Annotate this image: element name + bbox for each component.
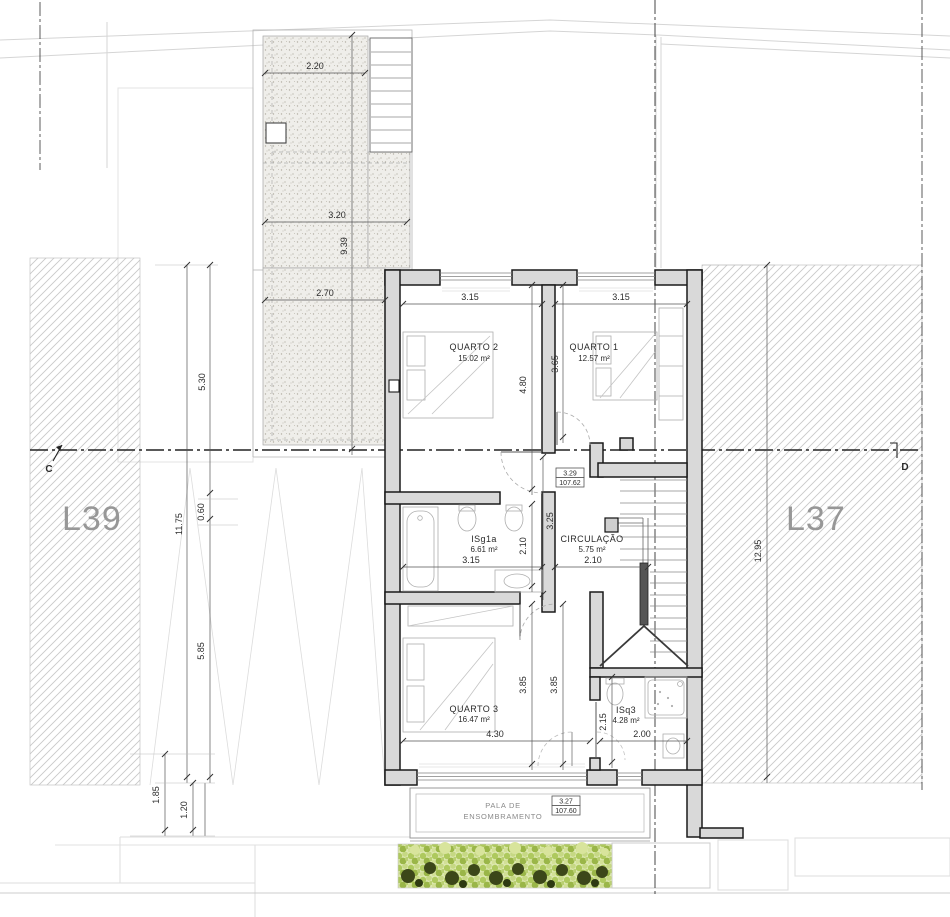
dim-q2-d: 4.80 bbox=[518, 376, 528, 394]
dim-isq3-d: 2.15 bbox=[598, 713, 608, 731]
room-isq3-name: ISq3 bbox=[616, 705, 636, 715]
dim-patio-top: 2.20 bbox=[306, 61, 324, 71]
dim-q2-w: 3.15 bbox=[461, 292, 479, 302]
svg-text:C: C bbox=[45, 464, 52, 475]
svg-text:D: D bbox=[901, 462, 908, 473]
dim-q1-w: 3.15 bbox=[612, 292, 630, 302]
room-isq3-area: 4.28 m² bbox=[612, 716, 639, 725]
dim-q1-d: 3.65 bbox=[550, 355, 560, 373]
lot-label-l37: L37 bbox=[786, 500, 846, 538]
dim-left-e: 1.20 bbox=[179, 801, 189, 819]
svg-text:107.62: 107.62 bbox=[559, 480, 581, 487]
floor-plan: L39 L37 bbox=[0, 0, 950, 917]
stair-column bbox=[605, 518, 618, 532]
room-circulacao-area: 5.75 m² bbox=[578, 545, 605, 554]
level-marker-pala: 3.27 107.60 bbox=[552, 796, 580, 815]
svg-text:107.60: 107.60 bbox=[555, 808, 577, 815]
dim-circ-d: 3.25 bbox=[545, 512, 555, 530]
dim-circ-w: 2.10 bbox=[584, 555, 602, 565]
room-quarto1-area: 12.57 m² bbox=[578, 354, 610, 363]
room-isg1a-area: 6.61 m² bbox=[470, 545, 497, 554]
dim-q3-w: 4.30 bbox=[486, 729, 504, 739]
dim-left-a: 5.30 bbox=[197, 373, 207, 391]
lot-label-l39: L39 bbox=[62, 500, 122, 538]
room-circulacao-name: CIRCULAÇÃO bbox=[560, 534, 623, 544]
hedge bbox=[398, 842, 612, 888]
room-quarto3-name: QUARTO 3 bbox=[450, 704, 499, 714]
svg-text:3.27: 3.27 bbox=[559, 799, 573, 806]
wall-vent bbox=[389, 380, 399, 392]
dim-patio-low: 2.70 bbox=[316, 288, 334, 298]
exterior-stair bbox=[370, 38, 412, 152]
room-quarto1-name: QUARTO 1 bbox=[570, 342, 619, 352]
room-quarto2-area: 15.02 m² bbox=[458, 354, 490, 363]
patio-access-hatch bbox=[266, 123, 286, 143]
dim-left-total: 11.75 bbox=[174, 513, 184, 535]
dim-patio-len: 9.39 bbox=[339, 237, 349, 255]
stair-wall bbox=[640, 563, 648, 625]
dim-patio-mid: 3.20 bbox=[328, 210, 346, 220]
room-isg1a-name: ISg1a bbox=[471, 534, 497, 544]
room-quarto3-area: 16.47 m² bbox=[458, 715, 490, 724]
dim-left-d: 1.85 bbox=[151, 786, 161, 804]
dim-q3-d2: 3.85 bbox=[549, 676, 559, 694]
dim-left-b: 0.60 bbox=[196, 503, 206, 521]
floor-plan-canvas: L39 L37 bbox=[0, 0, 950, 917]
dim-bath-w: 3.15 bbox=[462, 555, 480, 565]
room-quarto2-name: QUARTO 2 bbox=[450, 342, 499, 352]
pala-ensombramento: PALA DE ENSOMBRAMENTO bbox=[410, 788, 650, 841]
pala-label-1: PALA DE bbox=[485, 801, 521, 810]
level-marker-floor: 3.29 107.62 bbox=[556, 468, 584, 487]
dim-isq3-w: 2.00 bbox=[633, 729, 651, 739]
pala-label-2: ENSOMBRAMENTO bbox=[464, 812, 543, 821]
dim-left-c: 5.85 bbox=[196, 642, 206, 660]
dim-q3-d: 3.85 bbox=[518, 676, 528, 694]
dim-lot-right: 12.95 bbox=[753, 540, 763, 563]
dim-bath-d: 2.10 bbox=[518, 537, 528, 555]
svg-text:3.29: 3.29 bbox=[563, 471, 577, 478]
